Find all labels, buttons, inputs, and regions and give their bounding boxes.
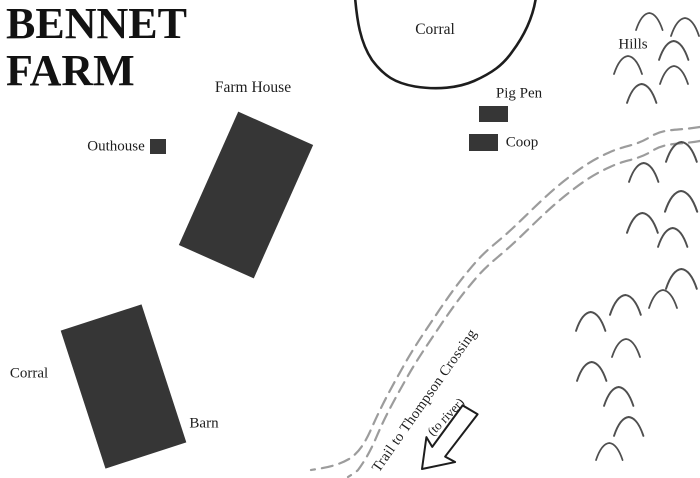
map-title: BENNET FARM [6,0,187,94]
hill-icon [604,387,633,406]
pig-pen-building [479,106,508,122]
hill-icon [671,18,699,36]
hill-icon [627,213,658,233]
hill-icon [666,269,697,289]
map-title-line2: FARM [6,47,187,94]
hill-icon [627,84,656,103]
coop-building [469,134,498,151]
farm-map: BENNET FARM Corral Hills Farm House Pig … [0,0,700,478]
hill-icon [614,417,643,436]
hill-icon [629,163,658,182]
pig-pen-label: Pig Pen [496,86,542,103]
corral-bottom-label: Corral [10,366,48,383]
hill-icon [636,13,663,30]
hill-icon [610,295,641,315]
barn-label: Barn [189,416,218,433]
hills-label: Hills [618,37,647,54]
outhouse-label: Outhouse [87,139,145,156]
hill-icon [660,66,688,84]
farm-house-label: Farm House [215,79,291,97]
corral-top-label: Corral [415,21,455,39]
coop-label: Coop [506,135,539,152]
map-title-line1: BENNET [6,0,187,47]
hill-icon [649,290,677,308]
hill-icon [576,312,605,331]
hill-icon [577,362,606,381]
corral-fence-line [355,0,536,88]
hill-icon [659,41,688,60]
hill-icon [614,56,642,74]
hill-icon [658,228,687,247]
hill-icon [665,191,697,212]
hills-symbols [576,13,699,460]
outhouse-building [150,139,166,154]
hill-icon [612,339,640,357]
trail-dashed-line-northwest [311,127,700,470]
hill-icon [596,443,623,460]
